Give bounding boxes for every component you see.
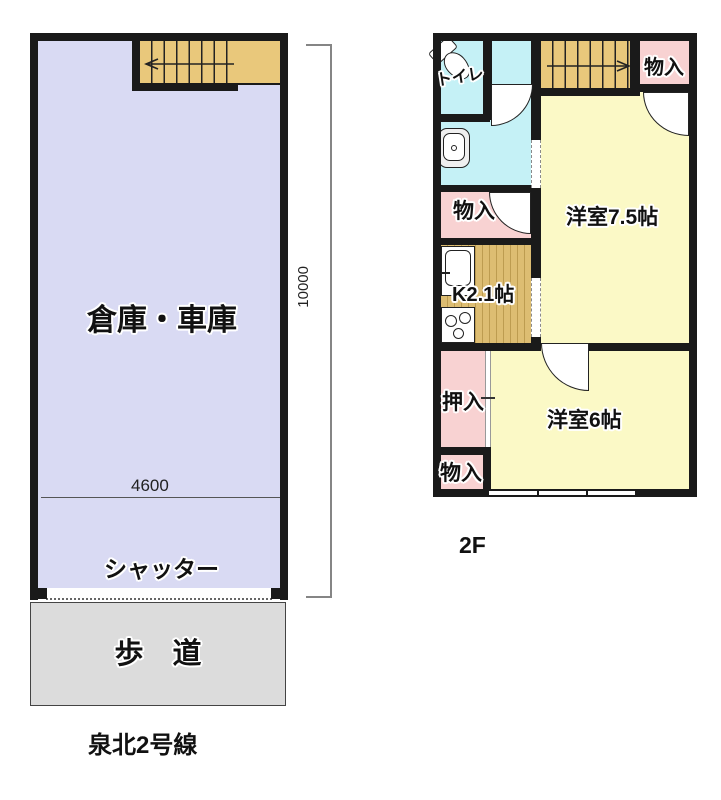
storage-mid-left-label: 物入 — [453, 201, 495, 222]
garage-room-label: 倉庫・車庫 — [87, 306, 237, 336]
dim-4600-label: 4600 — [131, 477, 169, 494]
wall — [132, 83, 238, 91]
dim-10000-label: 10000 — [296, 266, 311, 308]
wall — [433, 185, 541, 192]
sidewalk-label: 歩 道 — [114, 640, 201, 669]
sliding-door-opening — [531, 140, 541, 188]
interior-dimension-line — [41, 497, 280, 498]
stairs-1f-landing — [238, 41, 280, 85]
window-mullion — [537, 489, 539, 497]
wall — [633, 84, 697, 92]
kitchen-label: K2.1帖 — [452, 285, 514, 305]
western-room-6-label: 洋室6帖 — [547, 410, 622, 431]
stove-icon — [441, 307, 475, 343]
shutter-label: シャッター — [104, 558, 219, 581]
wall — [271, 588, 280, 599]
wall — [433, 33, 441, 497]
floor-plan-canvas: 4600 倉庫・車庫 シャッター 歩 道 泉北2号線 10000 — [0, 0, 721, 800]
shutter-opening — [46, 588, 272, 600]
sliding-door-opening — [531, 278, 541, 337]
road-label: 泉北2号線 — [88, 734, 197, 758]
wall — [531, 88, 640, 96]
stairs-direction-arrow-icon — [144, 58, 236, 70]
storage-top-right-label: 物入 — [644, 58, 684, 78]
wall — [30, 33, 38, 600]
wall — [38, 588, 47, 599]
storage-bottom-left-label: 物入 — [440, 463, 482, 484]
stairs-direction-arrow-icon — [545, 60, 631, 72]
closet-sliding-door — [485, 351, 491, 447]
wall — [433, 447, 489, 455]
wall — [689, 33, 697, 497]
floor2-label: 2F — [459, 534, 486, 557]
washbasin-icon — [438, 128, 470, 168]
sidewalk-area: 歩 道 — [30, 602, 286, 706]
wall — [433, 33, 697, 41]
dimension-line-vertical — [330, 44, 332, 598]
western-room-75-label: 洋室7.5帖 — [566, 207, 658, 228]
wall — [30, 33, 288, 41]
wall — [433, 114, 490, 122]
dimension-tick-bottom — [306, 596, 331, 598]
window-mullion — [586, 489, 588, 497]
dimension-tick-top — [306, 44, 331, 46]
closet-label: 押入 — [442, 392, 484, 413]
window-bottom — [489, 489, 635, 497]
wall — [280, 33, 288, 600]
wall — [433, 238, 541, 245]
wall — [589, 343, 689, 351]
wall — [531, 188, 541, 278]
wall — [433, 343, 541, 351]
